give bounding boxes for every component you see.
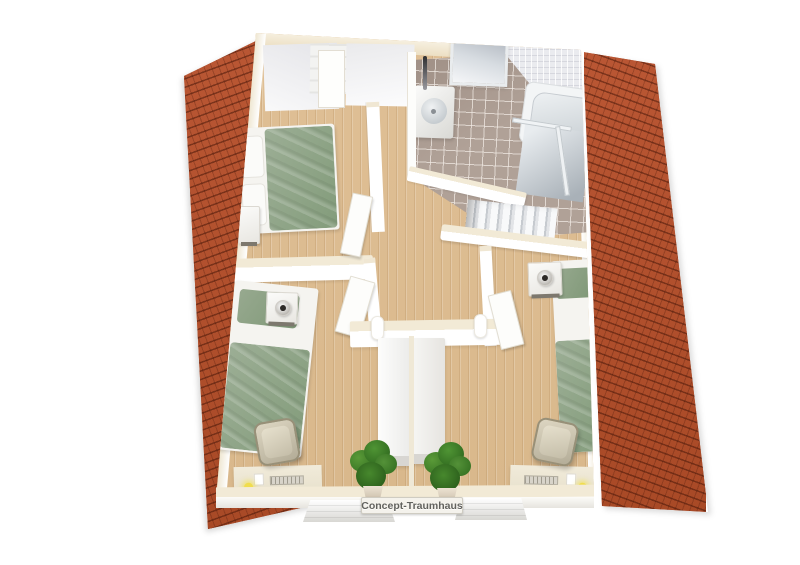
washbasin: [413, 85, 455, 138]
room-door: [340, 192, 373, 257]
watermark-text: Concept-Traumhaus: [361, 500, 463, 512]
keyboard: [524, 475, 558, 485]
closet-door: [318, 50, 345, 108]
nightstand: [527, 261, 562, 296]
office-chair: [252, 417, 301, 468]
right-roof-tiles: [584, 42, 706, 522]
skylight-window: [449, 38, 509, 87]
floorplan-scene: Concept-Traumhaus: [0, 0, 800, 565]
office-chair: [530, 416, 580, 468]
chair-seat: [261, 425, 294, 459]
paper-sheet: [254, 473, 264, 485]
faucet: [423, 56, 427, 90]
chair-seat: [538, 424, 572, 459]
sloped-ceiling-panel: [345, 43, 414, 106]
right-roof: [578, 48, 712, 516]
plant-foliage: [430, 464, 460, 492]
paper-sheet: [566, 473, 576, 485]
door-frame-post: [474, 314, 487, 338]
shower-tray: [515, 124, 592, 203]
washbasin-drain: [431, 109, 436, 114]
plant-foliage: [356, 462, 386, 490]
table-lamp: [275, 300, 292, 317]
watermark-label: Concept-Traumhaus: [361, 497, 463, 514]
keyboard: [270, 475, 304, 485]
right-roof-trim: [578, 48, 712, 516]
table-lamp: [537, 270, 554, 287]
potted-plant: [348, 440, 398, 504]
interior-wall: [409, 336, 414, 498]
nightstand: [265, 291, 298, 324]
bathroom-wall: [408, 52, 416, 180]
door-frame-post: [371, 316, 384, 340]
nightstand: [238, 206, 260, 244]
duvet: [264, 126, 337, 231]
